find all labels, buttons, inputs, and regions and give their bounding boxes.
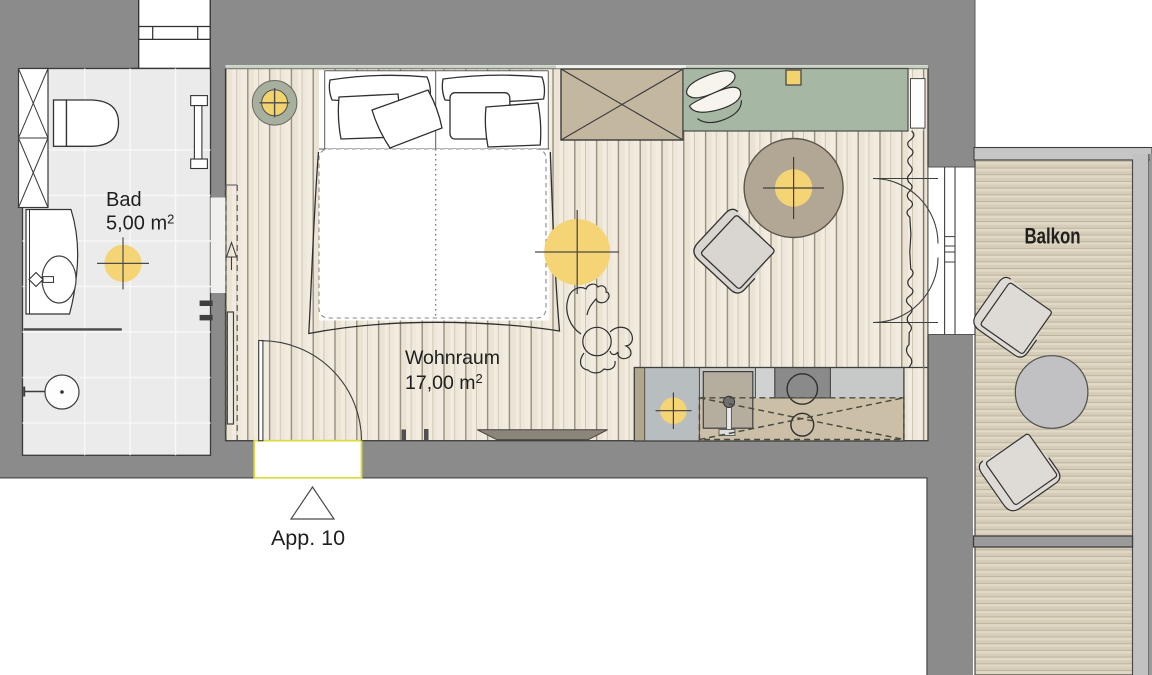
svg-text:5,00 m2: 5,00 m2: [106, 212, 174, 235]
svg-text:Balkon: Balkon: [1025, 224, 1081, 249]
svg-text:App. 10: App. 10: [271, 526, 345, 550]
svg-text:Wohnraum: Wohnraum: [405, 347, 500, 369]
svg-text:Bad: Bad: [106, 189, 142, 211]
svg-text:17,00 m2: 17,00 m2: [405, 371, 483, 394]
